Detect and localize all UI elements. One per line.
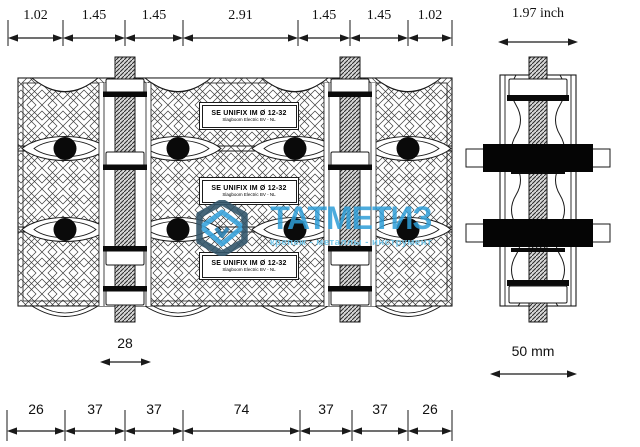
hexagon-logo-icon [192,200,252,256]
cable-hole [167,137,190,160]
cable-cleat-technical-drawing: SE UNIFIX IM Ø 12-32 Slagboom Electric B… [0,0,640,447]
arrowhead-right [141,358,151,365]
arrowhead-right [55,427,65,434]
product-label-subtext: Slagboom Electric BV - NL [203,193,296,198]
washer [103,165,147,171]
cable-hole [167,218,190,241]
arrowhead-right [173,427,183,434]
cable-cross-section-2 [483,219,593,247]
watermark-brand: ТАТМЕТИЗ [263,202,439,234]
arrowhead-left [408,34,418,41]
hex-nut-side-bottom [509,286,567,303]
product-label-plate: SE UNIFIX IM Ø 12-32 Slagboom Electric B… [199,102,299,130]
cable-hole [54,218,77,241]
arrowhead-right [173,34,183,41]
arrowhead-right [340,34,350,41]
cable-cross-section-1 [483,144,593,172]
washer-side-bottom [507,280,569,286]
washer [328,286,372,292]
hex-nut-side-top [509,79,567,96]
bottom-saddle-bump [375,306,441,317]
logo-inner-v [216,228,228,236]
cable-end-right-2 [592,224,610,242]
cable-hole [284,137,307,160]
bottom-saddle-bump [145,306,211,317]
arrowhead-left [125,427,135,434]
watermark-tagline: крепеж - металлы - инструмент [261,237,441,248]
logo-chevron-up [204,212,240,225]
arrowhead-right [115,427,125,434]
arrowhead-left [125,34,135,41]
side-view [466,57,610,322]
washer [328,165,372,171]
arrowhead-right [398,34,408,41]
clamp-bar-2 [511,248,565,252]
arrowhead-left [100,358,110,365]
arrowhead-left [183,34,193,41]
arrowhead-right [398,427,408,434]
washer-side-top [507,95,569,101]
arrowhead-right [442,34,452,41]
arrowhead-right [568,38,578,45]
washer [103,92,147,98]
arrowhead-left [300,427,310,434]
washer [328,92,372,98]
arrowhead-right [567,370,577,377]
bottom-saddle-bump [262,306,328,317]
arrowhead-left [350,34,360,41]
arrowhead-right [442,427,452,434]
arrowhead-left [490,370,500,377]
arrowhead-left [498,38,508,45]
arrowhead-right [342,427,352,434]
arrowhead-right [53,34,63,41]
product-label-subtext: Slagboom Electric BV - NL [203,268,296,273]
arrowhead-left [7,427,17,434]
cable-end-left-1 [466,149,484,167]
product-label-subtext: Slagboom Electric BV - NL [203,118,296,123]
washer [103,286,147,292]
arrowhead-left [183,427,193,434]
cable-hole [397,137,420,160]
product-label-plate: SE UNIFIX IM Ø 12-32 Slagboom Electric B… [199,252,299,280]
arrowhead-left [408,427,418,434]
arrowhead-right [115,34,125,41]
arrowhead-left [63,34,73,41]
arrowhead-left [352,427,362,434]
arrowhead-right [288,34,298,41]
cable-end-left-2 [466,224,484,242]
arrowhead-left [8,34,18,41]
arrowhead-right [290,427,300,434]
arrowhead-left [298,34,308,41]
cable-end-right-1 [592,149,610,167]
bottom-saddle-bump [32,306,98,317]
arrowhead-left [65,427,75,434]
cable-hole [54,137,77,160]
washer [103,246,147,252]
